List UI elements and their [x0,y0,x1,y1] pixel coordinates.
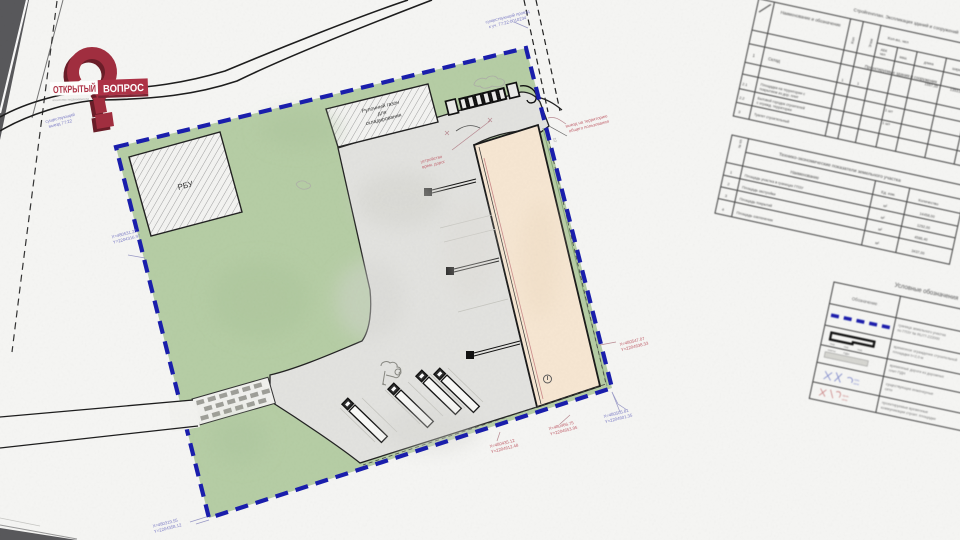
svg-text:ВОПРОС: ВОПРОС [103,82,145,95]
